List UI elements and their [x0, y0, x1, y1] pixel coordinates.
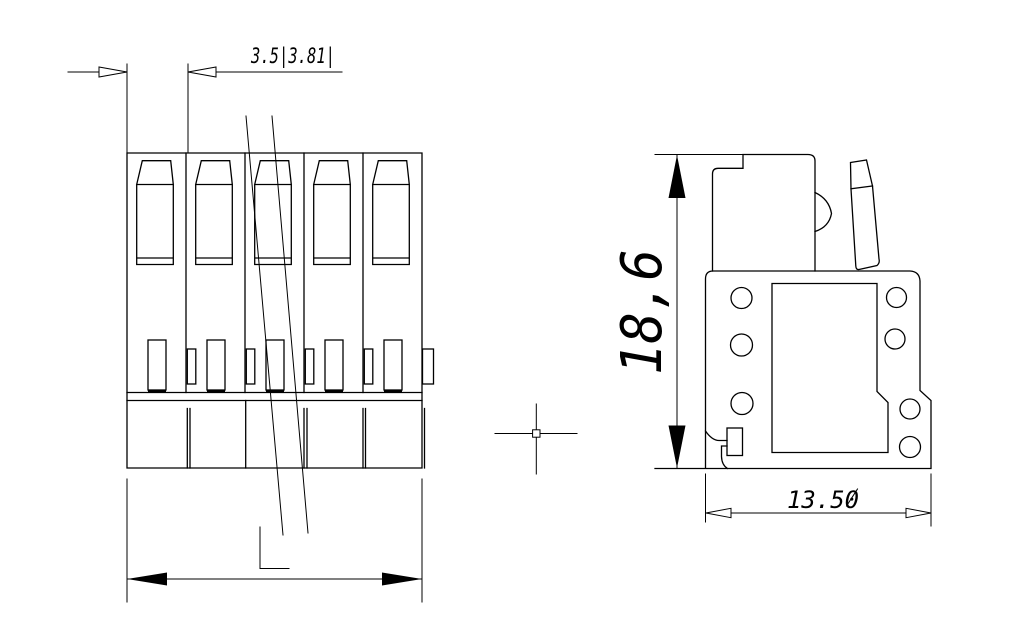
height-dimension: 18,6 — [610, 155, 743, 469]
center-mark-square — [533, 430, 540, 437]
clamp-opening — [266, 340, 284, 390]
depth-dimension-label: 13.50 — [787, 486, 859, 514]
width-arrow-right — [382, 573, 422, 586]
pcb-clip-block — [727, 428, 743, 456]
wire-slot — [373, 161, 410, 265]
mounting-hole — [731, 288, 752, 309]
mounting-hole — [731, 393, 753, 415]
width-arrow-left — [127, 573, 167, 586]
mounting-hole — [887, 288, 907, 308]
break-lines — [246, 116, 308, 535]
front-body-outline — [127, 153, 422, 468]
pitch-dimension-label: 3.5|3.81| — [250, 44, 335, 69]
mounting-hole — [885, 329, 905, 349]
clamp-opening-shadow — [148, 390, 166, 393]
clamp-opening-shadow — [207, 390, 225, 393]
side-view — [655, 155, 931, 469]
mounting-hole — [900, 399, 920, 419]
latch-slot — [187, 349, 196, 384]
clamp-opening-shadow — [384, 390, 402, 393]
pole-divider-lines — [186, 153, 363, 393]
step-band-lines — [127, 393, 422, 401]
center-mark — [495, 404, 577, 474]
corner-mark — [260, 527, 289, 569]
latch-slot — [305, 349, 314, 384]
clamp-opening — [384, 340, 402, 390]
latch-slot — [364, 349, 373, 384]
height-arrow-up — [669, 155, 686, 198]
pitch-dimension: 3.5|3.81| — [68, 44, 342, 153]
mounting-holes — [731, 288, 921, 458]
side-latch-tab — [423, 349, 434, 384]
wire-slot — [314, 161, 351, 265]
width-extension-lines — [127, 479, 422, 602]
overall-width-dimension — [127, 479, 422, 602]
wire-slots — [137, 161, 410, 265]
wire-slot — [255, 161, 292, 265]
wire-cavity-outline — [772, 284, 888, 453]
lever-latch-bump — [815, 193, 832, 232]
clamp-opening-shadow — [325, 390, 343, 393]
clamp-opening-shadow — [266, 390, 284, 393]
release-lever-body — [851, 160, 880, 270]
base-divider-lines — [187, 401, 424, 469]
clamp-opening — [325, 340, 343, 390]
housing-profile — [713, 155, 816, 272]
technical-drawing-canvas: 3.5|3.81| — [0, 0, 1014, 620]
height-arrow-down — [669, 426, 686, 469]
height-dimension-label: 18,6 — [610, 249, 675, 375]
clamp-opening — [207, 340, 225, 390]
pitch-extension-lines — [127, 64, 188, 153]
front-view — [127, 116, 434, 535]
depth-arrow-right — [906, 508, 931, 517]
clamp-opening — [148, 340, 166, 390]
depth-dimension: 13.50 — [706, 474, 932, 526]
mounting-hole — [731, 334, 753, 356]
mounting-hole — [900, 437, 921, 458]
pcb-clip-lead-in — [706, 431, 728, 441]
center-mark-lines — [495, 404, 577, 474]
pitch-arrow-left — [99, 67, 127, 77]
pitch-arrow-right — [188, 67, 216, 77]
latch-slots — [187, 349, 433, 384]
depth-arrow-left — [706, 508, 731, 517]
latch-slot — [246, 349, 255, 384]
wire-slot — [137, 161, 174, 265]
pcb-clip — [706, 428, 743, 469]
flange-outline — [655, 271, 931, 469]
wire-slot — [196, 161, 233, 265]
release-lever — [851, 160, 880, 270]
